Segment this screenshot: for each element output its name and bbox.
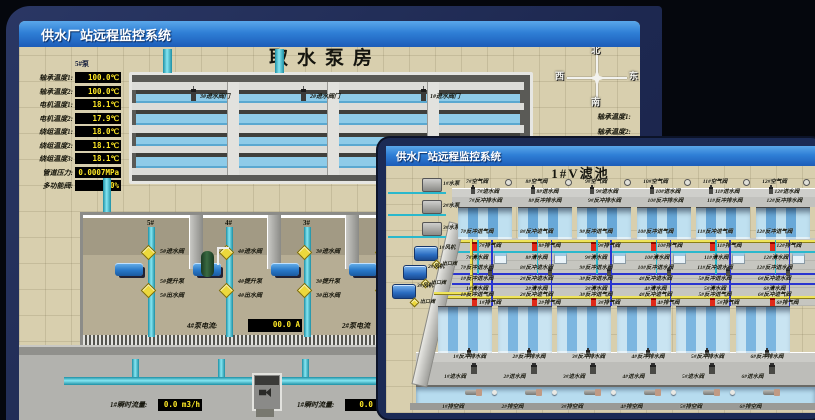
backwash-water-valve-label: 1#反冲进水阀 bbox=[450, 276, 504, 282]
bay-pillar bbox=[267, 215, 281, 269]
blower-label: 3#风机 bbox=[417, 283, 434, 289]
camera-box[interactable] bbox=[252, 373, 282, 411]
inlet-valve-label: 3#进水阀 bbox=[547, 374, 601, 380]
inlet-valve-icon[interactable] bbox=[709, 187, 713, 194]
trough-dot bbox=[492, 390, 497, 395]
clean-water-tank-icon[interactable] bbox=[613, 253, 626, 264]
pump-param-label: 绕组温度3: bbox=[27, 155, 73, 163]
backwash-water-valve-label: 12#反冲进水阀 bbox=[748, 265, 802, 271]
compass: 北 西 南 东 bbox=[559, 49, 640, 111]
pump-param-value[interactable]: 18.1℃ bbox=[75, 153, 121, 164]
pump1-param-label: 轴承温度1: bbox=[597, 113, 631, 121]
pump-param-value[interactable]: 18.0℃ bbox=[75, 126, 121, 137]
drain-valve-label: 6#反冲排水阀 bbox=[751, 354, 784, 360]
clean-valve-label: 9#清水阀 bbox=[585, 255, 607, 261]
inlet-gate-valve-icon[interactable] bbox=[191, 89, 196, 101]
air-valve-label: 8#空气阀 bbox=[510, 179, 564, 185]
backwash-water-valve-label: 7#反冲进水阀 bbox=[450, 265, 504, 271]
inlet-valve-icon[interactable] bbox=[709, 365, 715, 374]
backwash-water-valve-label: 10#反冲进水阀 bbox=[629, 265, 683, 271]
backwash-water-valve-label: 6#反冲进水阀 bbox=[748, 276, 802, 282]
backwash-air-valve-label: 10#反冲进气阀 bbox=[629, 229, 683, 235]
filter-window: 供水厂站远程监控系统 1#V滤池 1#水泵2#水泵3#水泵1#风机出口阀2#风机… bbox=[386, 146, 815, 413]
bay-label: 5# bbox=[147, 219, 154, 227]
inlet-valve-label: 2#进水阀 bbox=[488, 374, 542, 380]
inlet-valve-icon[interactable] bbox=[769, 365, 775, 374]
backwash-air-valve-label: 9#反冲进气阀 bbox=[569, 229, 623, 235]
inlet-valve-label: 4#进水阀 bbox=[607, 374, 661, 380]
compass-south: 南 bbox=[591, 97, 600, 107]
pump5-label: 5#泵 bbox=[75, 60, 89, 68]
air-valve-label: 9#空气阀 bbox=[569, 179, 623, 185]
blower-outlet-valve-label: 出口阀 bbox=[420, 300, 435, 306]
bay-inlet-valve-label: 4#进水阀 bbox=[238, 249, 262, 256]
inlet-gate-valve-icon[interactable] bbox=[301, 89, 306, 101]
exhaust-valve-icon[interactable] bbox=[651, 242, 656, 251]
pump-house-titlebar[interactable]: 供水厂站远程监控系统 bbox=[19, 21, 640, 47]
empty-valve-label: 1#排空阀 bbox=[426, 404, 480, 410]
filter-titlebar[interactable]: 供水厂站远程监控系统 bbox=[386, 146, 815, 166]
inlet-valve-icon[interactable] bbox=[769, 187, 773, 194]
drain-valve-label: 10#反冲排水阀 bbox=[648, 198, 684, 204]
pump-param-value[interactable]: 18.1℃ bbox=[75, 99, 121, 110]
back-drain-ledge bbox=[452, 197, 815, 207]
backwash-air-valve-label: 7#反冲进气阀 bbox=[450, 229, 504, 235]
filter-window-title: 供水厂站远程监控系统 bbox=[396, 149, 501, 164]
flow2-label: 1#瞬时流量: bbox=[297, 401, 334, 409]
pump-param-value[interactable]: 0% bbox=[75, 180, 121, 191]
blower-label: 1#风机 bbox=[439, 245, 456, 251]
bay-label: 4# bbox=[225, 219, 232, 227]
bay-inlet-valve-label: 5#进水阀 bbox=[160, 249, 184, 256]
pump-house-window-title: 供水厂站远程监控系统 bbox=[41, 25, 171, 44]
drain-valve-label: 2#反冲排水阀 bbox=[513, 354, 546, 360]
empty-valve-icon[interactable] bbox=[644, 390, 657, 395]
clean-water-tank-icon[interactable] bbox=[732, 253, 745, 264]
compass-west: 西 bbox=[555, 71, 564, 81]
exhaust-valve-label: 11#排气阀 bbox=[717, 243, 741, 249]
backwash-air-valve-label: 2#反冲进气阀 bbox=[510, 292, 564, 298]
backwash-air-valve-label: 11#反冲进气阀 bbox=[688, 229, 742, 235]
inlet-valve-icon[interactable] bbox=[471, 187, 475, 194]
filter-cell-front[interactable] bbox=[498, 306, 552, 353]
backwash-air-valve-label: 4#反冲进气阀 bbox=[629, 292, 683, 298]
backwash-water-valve-label: 9#反冲进水阀 bbox=[569, 265, 623, 271]
filter-cell-front[interactable] bbox=[438, 306, 492, 353]
empty-valve-label: 3#排空阀 bbox=[545, 404, 599, 410]
bay-pillar bbox=[345, 215, 359, 269]
pump-param-label: 绕组温度1: bbox=[27, 128, 73, 136]
trough-dot bbox=[730, 390, 735, 395]
bay-inlet-valve-label: 3#进水阀 bbox=[316, 249, 340, 256]
exhaust-valve-icon[interactable] bbox=[591, 242, 596, 251]
pipe bbox=[132, 359, 139, 379]
bay-outlet-valve-label: 4#出水阀 bbox=[238, 293, 262, 300]
drain-valve-label: 3#反冲排水阀 bbox=[572, 354, 605, 360]
backwash-air-valve-label: 8#反冲进气阀 bbox=[510, 229, 564, 235]
empty-valve-icon[interactable] bbox=[703, 390, 716, 395]
pump-param-label: 绕组温度2: bbox=[27, 142, 73, 150]
trough-dot bbox=[552, 390, 557, 395]
camera-icon bbox=[259, 388, 271, 397]
inlet-valve-icon[interactable] bbox=[531, 365, 537, 374]
wash-line-back bbox=[452, 273, 815, 275]
blower-icon[interactable] bbox=[414, 246, 438, 261]
exhaust-valve-label: 9#排气阀 bbox=[598, 243, 620, 249]
blower-icon[interactable] bbox=[403, 265, 427, 280]
pump-param-value[interactable]: 100.0℃ bbox=[75, 86, 121, 97]
clean-valve-label: 8#清水阀 bbox=[526, 255, 548, 261]
empty-valve-label: 6#排空阀 bbox=[724, 404, 778, 410]
pump4-current-value[interactable]: 00.0 A bbox=[248, 319, 302, 332]
air-valve-label: 7#空气阀 bbox=[450, 179, 504, 185]
air-valve-icon[interactable] bbox=[803, 179, 810, 186]
inlet-valve-label: 6#进水阀 bbox=[726, 374, 780, 380]
inlet-valve-label: 1#进水阀 bbox=[428, 374, 482, 380]
backwash-water-valve-label: 2#反冲进水阀 bbox=[510, 276, 564, 282]
lift-pump-icon[interactable] bbox=[349, 263, 377, 276]
bay-outlet-valve-label: 5#出水阀 bbox=[160, 293, 184, 300]
filter-cell-front[interactable] bbox=[736, 306, 790, 353]
drain-valve-label: 5#反冲排水阀 bbox=[691, 354, 724, 360]
inlet-valve-icon[interactable] bbox=[531, 187, 535, 194]
backwash-water-valve-label: 4#反冲进水阀 bbox=[629, 276, 683, 282]
clean-valve-label: 7#清水阀 bbox=[466, 255, 488, 261]
pump-param-label: 轴承温度1: bbox=[27, 74, 73, 82]
lift-pump-icon[interactable] bbox=[115, 263, 143, 276]
clean-valve-label: 10#清水阀 bbox=[645, 255, 670, 261]
inlet-valve-label: 11#进水阀 bbox=[715, 189, 739, 195]
drain-valve-label: 8#反冲排水阀 bbox=[529, 198, 562, 204]
clean-water-tank-icon[interactable] bbox=[792, 253, 805, 264]
backwash-air-valve-label: 12#反冲进气阀 bbox=[748, 229, 802, 235]
inlet-valve-label: 7#进水阀 bbox=[477, 189, 499, 195]
blower-icon[interactable] bbox=[392, 284, 416, 299]
exhaust-valve-icon[interactable] bbox=[770, 242, 775, 251]
pump1-param-label: 轴承温度2: bbox=[597, 128, 631, 136]
pump-param-label: 管道压力: bbox=[27, 169, 73, 177]
empty-valve-label: 5#排空阀 bbox=[664, 404, 718, 410]
air-valve-label: 11#空气阀 bbox=[688, 179, 742, 185]
bracket bbox=[217, 247, 229, 265]
bay-pipe bbox=[304, 227, 311, 337]
drain-valve-label: 4#反冲排水阀 bbox=[632, 354, 665, 360]
camera-base bbox=[256, 409, 274, 417]
backwash-air-valve-label: 5#反冲进气阀 bbox=[688, 292, 742, 298]
wash-pump-icon[interactable] bbox=[422, 200, 442, 214]
exhaust-valve-icon[interactable] bbox=[532, 242, 537, 251]
drain-valve-label: 11#反冲排水阀 bbox=[707, 198, 742, 204]
empty-valve-icon[interactable] bbox=[465, 390, 478, 395]
bay-pipe bbox=[148, 227, 155, 337]
inlet-gate-label: 2#进水阀门 bbox=[310, 94, 340, 101]
backwash-air-valve-label: 1#反冲进气阀 bbox=[450, 292, 504, 298]
inlet-valve-icon[interactable] bbox=[650, 187, 654, 194]
bay-label: 3# bbox=[303, 219, 310, 227]
pump4-current-label: 4#泵电流: bbox=[187, 322, 217, 330]
pipe bbox=[163, 49, 172, 73]
compass-east: 东 bbox=[629, 71, 638, 81]
inlet-valve-label: 5#进水阀 bbox=[666, 374, 720, 380]
pipe bbox=[218, 359, 225, 379]
exhaust-valve-icon[interactable] bbox=[472, 242, 477, 251]
shelf-edge bbox=[388, 236, 446, 238]
pump-house-scene-title: 取水泵房 bbox=[269, 49, 381, 69]
exhaust-valve-label: 12#排气阀 bbox=[777, 243, 802, 249]
backwash-air-valve-label: 3#反冲进气阀 bbox=[569, 292, 623, 298]
empty-valve-label: 4#排空阀 bbox=[605, 404, 659, 410]
bay-outlet-valve-label: 3#出水阀 bbox=[316, 293, 340, 300]
backwash-water-valve-label: 11#反冲进水阀 bbox=[688, 265, 742, 271]
lift-pump-label: 5#提升泵 bbox=[160, 279, 184, 286]
drain-valve-label: 9#反冲排水阀 bbox=[588, 198, 621, 204]
inlet-valve-icon[interactable] bbox=[650, 365, 656, 374]
air-valve-label: 12#空气阀 bbox=[748, 179, 802, 185]
clean-water-tank-icon[interactable] bbox=[494, 253, 507, 264]
air-line-back bbox=[446, 240, 815, 242]
pump-param-value[interactable]: 100.0℃ bbox=[75, 72, 121, 83]
inlet-gate-label: 1#进水阀门 bbox=[430, 94, 460, 101]
drain-valve-label: 1#反冲排水阀 bbox=[453, 354, 486, 360]
empty-valve-icon[interactable] bbox=[525, 390, 538, 395]
empty-valve-label: 2#排空阀 bbox=[486, 404, 540, 410]
lift-pump-label: 4#提升泵 bbox=[238, 279, 262, 286]
clean-water-tank-icon[interactable] bbox=[673, 253, 686, 264]
exhaust-valve-label: 8#排气阀 bbox=[539, 243, 561, 249]
exhaust-valve-label: 10#排气阀 bbox=[658, 243, 683, 249]
pipe bbox=[275, 49, 284, 73]
trough-dot bbox=[671, 390, 676, 395]
pump-param-label: 多功能阀: bbox=[27, 182, 73, 190]
inlet-gate-valve-icon[interactable] bbox=[421, 89, 426, 101]
blower-outlet-valve-icon[interactable] bbox=[410, 298, 420, 308]
pump5-readout-panel: 轴承温度1:100.0℃轴承温度2:100.0℃电机温度1:18.1℃电机温度2… bbox=[27, 72, 127, 202]
filter-cell-front[interactable] bbox=[617, 306, 671, 353]
air-valve-label: 10#空气阀 bbox=[629, 179, 683, 185]
inlet-valve-icon[interactable] bbox=[590, 365, 596, 374]
backwash-water-valve-label: 8#反冲进水阀 bbox=[510, 265, 564, 271]
drain-valve-label: 7#反冲排水阀 bbox=[469, 198, 502, 204]
trough-dot bbox=[611, 390, 616, 395]
pump-param-value[interactable]: 18.1℃ bbox=[75, 140, 121, 151]
bay-pipe bbox=[226, 227, 233, 337]
pump-param-label: 电机温度1: bbox=[27, 101, 73, 109]
flow1-label: 1#瞬时流量: bbox=[110, 401, 147, 409]
drain-valve-label: 12#反冲排水阀 bbox=[767, 198, 803, 204]
inlet-valve-label: 8#进水阀 bbox=[537, 189, 559, 195]
lift-pump-icon[interactable] bbox=[271, 263, 299, 276]
inlet-valve-icon[interactable] bbox=[590, 187, 594, 194]
wash-pump-icon[interactable] bbox=[422, 178, 442, 192]
pump-param-label: 轴承温度2: bbox=[27, 88, 73, 96]
inlet-valve-label: 10#进水阀 bbox=[656, 189, 681, 195]
clean-water-tank-icon[interactable] bbox=[554, 253, 567, 264]
empty-valve-icon[interactable] bbox=[763, 390, 776, 395]
lift-pump-label: 3#提升泵 bbox=[316, 279, 340, 286]
flow1-value[interactable]: 0.0 m3/h bbox=[158, 399, 202, 411]
exhaust-valve-label: 7#排气阀 bbox=[479, 243, 501, 249]
filter-cell-front[interactable] bbox=[557, 306, 611, 353]
wash-pump-icon[interactable] bbox=[422, 222, 442, 236]
clean-valve-label: 12#清水阀 bbox=[764, 255, 789, 261]
backwash-water-valve-label: 3#反冲进水阀 bbox=[569, 276, 623, 282]
wash-line-front bbox=[452, 283, 815, 285]
exhaust-valve-icon[interactable] bbox=[710, 242, 715, 251]
backwash-air-valve-label: 6#反冲进气阀 bbox=[748, 292, 802, 298]
clean-valve-label: 11#清水阀 bbox=[704, 255, 728, 261]
inlet-valve-icon[interactable] bbox=[471, 365, 477, 374]
inlet-valve-label: 9#进水阀 bbox=[596, 189, 618, 195]
filter-cell-front[interactable] bbox=[676, 306, 730, 353]
pump-param-label: 电机温度2: bbox=[27, 115, 73, 123]
green-tank[interactable] bbox=[201, 251, 214, 277]
empty-valve-icon[interactable] bbox=[584, 390, 597, 395]
inlet-valve-label: 12#进水阀 bbox=[775, 189, 800, 195]
shelf-edge bbox=[388, 192, 446, 194]
compass-star bbox=[588, 69, 606, 87]
pipe bbox=[302, 359, 309, 379]
compass-north: 北 bbox=[591, 47, 600, 55]
inlet-gate-label: 3#进水阀门 bbox=[200, 94, 230, 101]
filter-scene: 1#V滤池 1#水泵2#水泵3#水泵1#风机出口阀2#风机出口阀3#风机出口阀7… bbox=[386, 166, 815, 413]
blower-label: 2#风机 bbox=[428, 264, 445, 270]
pump-param-value[interactable]: 0.0007MPa bbox=[75, 167, 121, 178]
pump-param-value[interactable]: 17.9℃ bbox=[75, 113, 121, 124]
shelf-edge bbox=[388, 214, 446, 216]
backwash-water-valve-label: 5#反冲进水阀 bbox=[688, 276, 742, 282]
pump2-current-label: 2#泵电流 bbox=[342, 322, 370, 330]
